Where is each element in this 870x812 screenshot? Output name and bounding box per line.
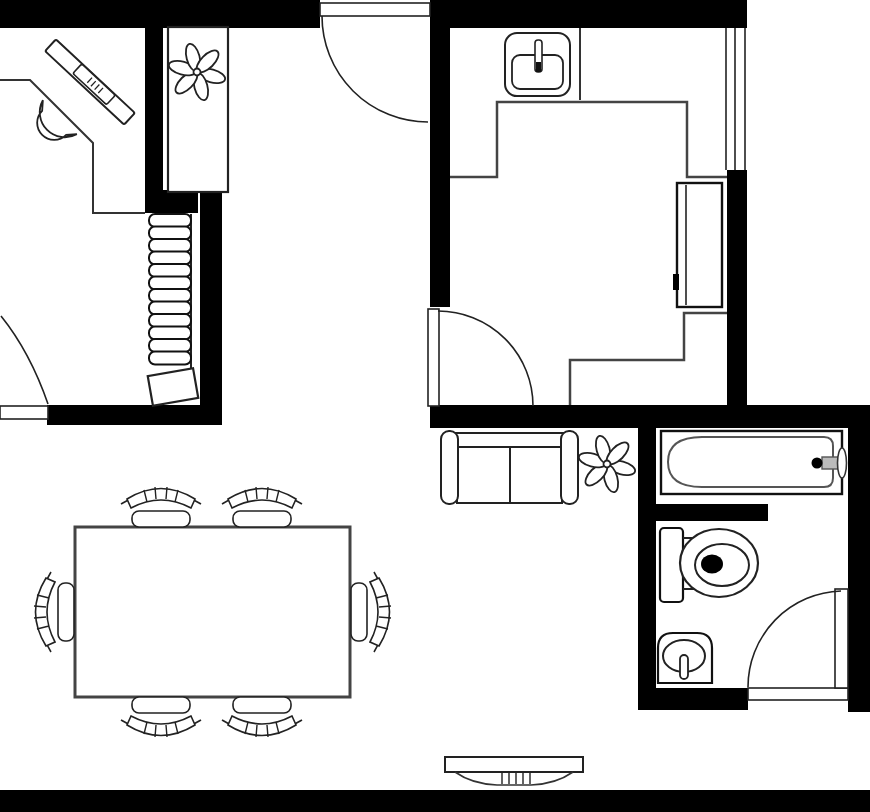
vanity-sink	[658, 633, 712, 683]
tv-console	[445, 757, 583, 785]
window-right-wall	[724, 28, 748, 170]
top-wall-right	[430, 0, 747, 28]
entry-door-swing-arc	[322, 16, 428, 122]
tub-drain-knob	[812, 458, 823, 469]
office-door	[0, 316, 48, 419]
kitchen-door-swing-arc	[438, 311, 533, 406]
vanity-tap	[680, 655, 688, 679]
kitchen-left-wall	[430, 0, 450, 307]
floor-mat	[148, 368, 199, 406]
refrigerator	[673, 183, 722, 307]
living-dining	[34, 431, 637, 785]
bathroom-door-swing-arc	[748, 591, 841, 687]
bathtub	[661, 431, 847, 494]
kitchen-interior-door	[428, 309, 533, 406]
kitchen-right-wall-upper	[727, 0, 747, 30]
bathroom-partition-wall	[656, 504, 768, 521]
office-door-threshold	[0, 406, 48, 419]
dining-chair-top-1	[121, 487, 201, 527]
top-wall-left	[0, 0, 320, 28]
counter-bottom-edge	[570, 313, 727, 405]
tub-faucet-handle	[838, 448, 847, 478]
plan-bottom-wall	[0, 790, 870, 812]
bathroom	[658, 431, 847, 683]
corner-desk	[0, 80, 145, 213]
bathroom-door-threshold	[748, 688, 848, 700]
staircase	[149, 214, 191, 368]
office-bottom-wall	[47, 405, 222, 425]
floor-plan	[0, 0, 870, 812]
sofa-arm-right	[561, 431, 578, 504]
toilet-flush	[701, 555, 723, 574]
closet-right-wall	[200, 190, 222, 425]
dining-chair-left	[34, 572, 74, 652]
office-divider-wall	[145, 28, 163, 213]
kitchen-sink	[505, 33, 570, 96]
dining-chair-bottom-2	[222, 697, 302, 737]
dining-chair-bottom-1	[121, 697, 201, 737]
bathroom-left-wall	[638, 428, 656, 700]
bathroom-door	[748, 589, 848, 700]
bathroom-door-leaf	[835, 589, 848, 688]
dining-chair-top-2	[222, 487, 302, 527]
potted-plant-living	[577, 434, 636, 493]
kitchen-right-wall-lower	[727, 170, 747, 405]
office-room	[0, 39, 145, 213]
bathroom-bottom-wall	[638, 688, 748, 710]
laptop	[73, 64, 116, 105]
desk-chair	[25, 100, 77, 152]
sofa-loveseat	[441, 431, 578, 504]
kitchen-door-leaf	[428, 309, 439, 406]
closet-stub-wall	[145, 190, 198, 213]
entry-door-leaf	[320, 3, 430, 16]
dining-table	[75, 527, 350, 697]
fridge-handle	[673, 274, 679, 290]
sink-tap	[536, 62, 541, 72]
office-door-swing-arc	[1, 316, 48, 404]
sofa-arm-left	[441, 431, 458, 504]
kitchen-room	[450, 28, 727, 405]
counter-top-edge	[450, 102, 727, 177]
entry-door	[320, 3, 430, 122]
toilet	[660, 528, 758, 602]
bathroom-right-wall	[848, 428, 870, 712]
dining-chair-right	[351, 572, 391, 652]
south-band-wall	[430, 405, 870, 428]
